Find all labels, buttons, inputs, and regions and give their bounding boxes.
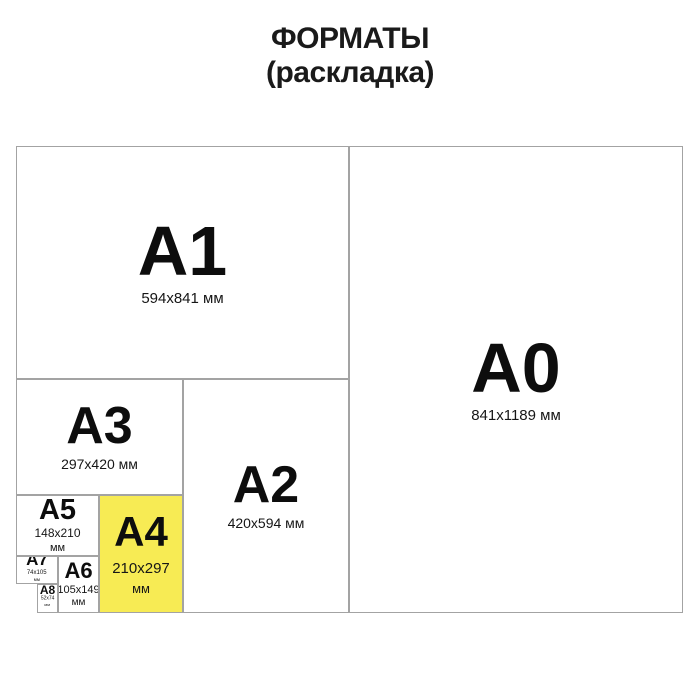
format-label: A0 — [471, 335, 560, 402]
format-size: 297x420 мм — [61, 456, 138, 472]
format-size: 841x1189 мм — [471, 407, 561, 424]
format-unit: мм — [45, 603, 51, 607]
format-unit: мм — [132, 582, 150, 596]
format-label: A2 — [233, 461, 299, 510]
format-label: A1 — [138, 218, 227, 285]
format-label: A6 — [64, 561, 92, 582]
format-box-a8: A8 52x74 мм — [37, 584, 58, 613]
format-box-a7: A7 74x105 мм — [16, 556, 58, 584]
format-size: 52x74 — [41, 596, 55, 601]
format-label: A4 — [114, 512, 168, 552]
format-label: A5 — [39, 497, 76, 525]
format-box-a3: A3 297x420 мм — [16, 379, 183, 495]
format-unit: мм — [34, 578, 40, 583]
format-unit: мм — [50, 542, 65, 554]
format-box-a0: A0 841x1189 мм — [349, 146, 683, 613]
format-size: 594x841 мм — [141, 290, 223, 307]
format-box-a6: A6 105x149 мм — [58, 556, 99, 613]
page: ФОРМАТЫ (раскладка) A1 594x841 мм A0 841… — [0, 0, 700, 700]
format-box-a5: A5 148x210 мм — [16, 495, 99, 556]
page-title-line2: (раскладка) — [0, 56, 700, 90]
format-box-a4: A4 210x297 мм — [99, 495, 183, 613]
page-title: ФОРМАТЫ (раскладка) — [0, 22, 700, 90]
page-title-line1: ФОРМАТЫ — [0, 22, 700, 56]
format-box-a2: A2 420x594 мм — [183, 379, 349, 613]
format-label: A8 — [40, 585, 55, 596]
format-size: 105x149 — [58, 584, 99, 597]
format-unit: мм — [72, 597, 86, 608]
format-label: A7 — [26, 556, 48, 568]
format-size: 210x297 — [112, 560, 170, 577]
format-size: 420x594 мм — [228, 515, 305, 531]
format-size: 148x210 — [34, 527, 80, 541]
format-box-a1: A1 594x841 мм — [16, 146, 349, 379]
format-size: 74x105 — [27, 569, 47, 575]
paper-formats-diagram: A1 594x841 мм A0 841x1189 мм A3 297x420 … — [16, 146, 683, 613]
format-label: A3 — [66, 402, 132, 451]
